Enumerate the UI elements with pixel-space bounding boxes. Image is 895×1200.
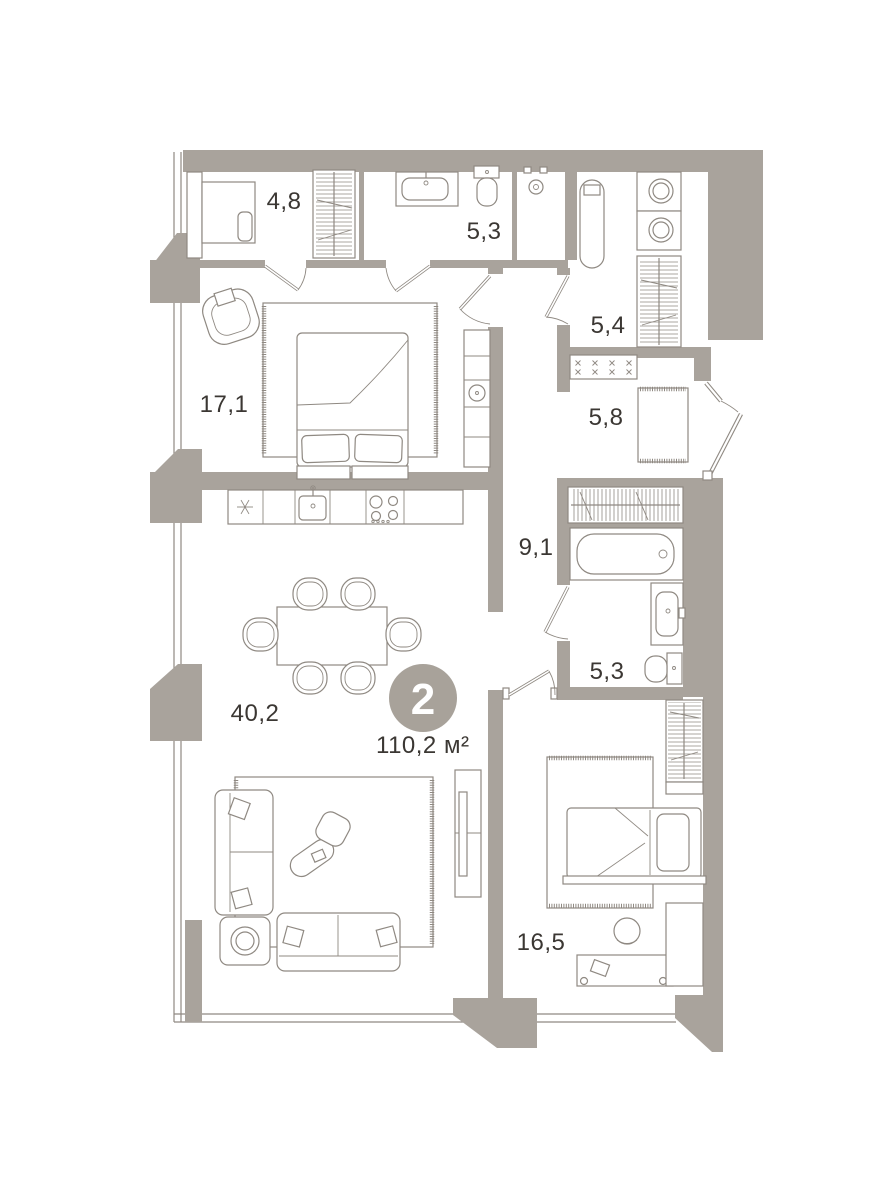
side-table-lamp-icon — [220, 917, 270, 965]
desk-icon — [577, 955, 673, 986]
bedroom-wardrobe-icon — [666, 700, 703, 782]
bathroom-main-fixtures — [570, 528, 685, 684]
laundry-wardrobe-icon — [637, 256, 681, 347]
dining-set — [243, 578, 421, 694]
bedroom-furniture — [547, 700, 706, 986]
room-area-label-entry-hall: 5,8 — [589, 404, 624, 431]
toilet-icon — [474, 166, 499, 206]
shelf-icon — [666, 782, 703, 794]
room-area-label-laundry: 5,4 — [591, 312, 626, 339]
room-area-label-living-kitchen: 40,2 — [231, 700, 280, 727]
sofa-icon — [215, 790, 273, 915]
tv-console-icon — [455, 770, 481, 897]
floor-plan-svg: 4,8 5,3 5,4 5,8 17,1 9,1 5,3 40,2 16,5 2… — [0, 0, 895, 1200]
dining-chair-icon — [293, 662, 327, 694]
dresser-icon — [464, 330, 490, 467]
wardrobe-hangers-icon — [313, 170, 355, 258]
rooms-count-number: 2 — [411, 675, 435, 724]
shoe-bench-icon — [570, 355, 637, 379]
room-area-label-master-bedroom: 17,1 — [200, 391, 249, 418]
cabinet-icon — [666, 903, 703, 986]
vanity-sink-icon — [651, 583, 685, 645]
dining-chair-icon — [293, 578, 327, 610]
dryer-machine-icon — [637, 211, 681, 250]
room-area-label-bathroom-top: 5,3 — [467, 218, 502, 245]
master-bedroom-furniture — [198, 283, 490, 479]
dining-chair-icon — [341, 662, 375, 694]
room-area-label-bathroom-main: 5,3 — [590, 658, 625, 685]
entry-door — [703, 383, 741, 480]
toilet-icon — [645, 653, 682, 684]
dining-chair-icon — [386, 618, 421, 651]
double-bed-icon — [297, 333, 408, 479]
armchair-icon — [198, 283, 264, 349]
kitchen-counter — [228, 486, 463, 524]
dining-chair-icon — [243, 618, 278, 651]
room-area-label-wardrobe: 4,8 — [267, 188, 302, 215]
room-area-label-bedroom: 16,5 — [517, 929, 566, 956]
single-bed-icon — [563, 808, 706, 884]
ironing-board-icon — [580, 180, 604, 268]
desk-chair-icon — [614, 918, 640, 944]
sofa-icon — [277, 913, 400, 971]
sink-icon — [396, 172, 458, 206]
rooms-count-badge: 2 — [389, 664, 457, 732]
floor-plan-page: 4,8 5,3 5,4 5,8 17,1 9,1 5,3 40,2 16,5 2… — [0, 0, 895, 1200]
corridor-closet-icon — [568, 487, 683, 523]
doormat-icon — [638, 388, 688, 462]
living-zone-furniture — [215, 770, 481, 971]
dining-chair-icon — [341, 578, 375, 610]
washing-machine-icon — [637, 172, 681, 211]
room-area-label-corridor: 9,1 — [519, 534, 554, 561]
total-area-label: 110,2 м² — [376, 732, 469, 759]
bathtub-icon — [570, 528, 683, 580]
